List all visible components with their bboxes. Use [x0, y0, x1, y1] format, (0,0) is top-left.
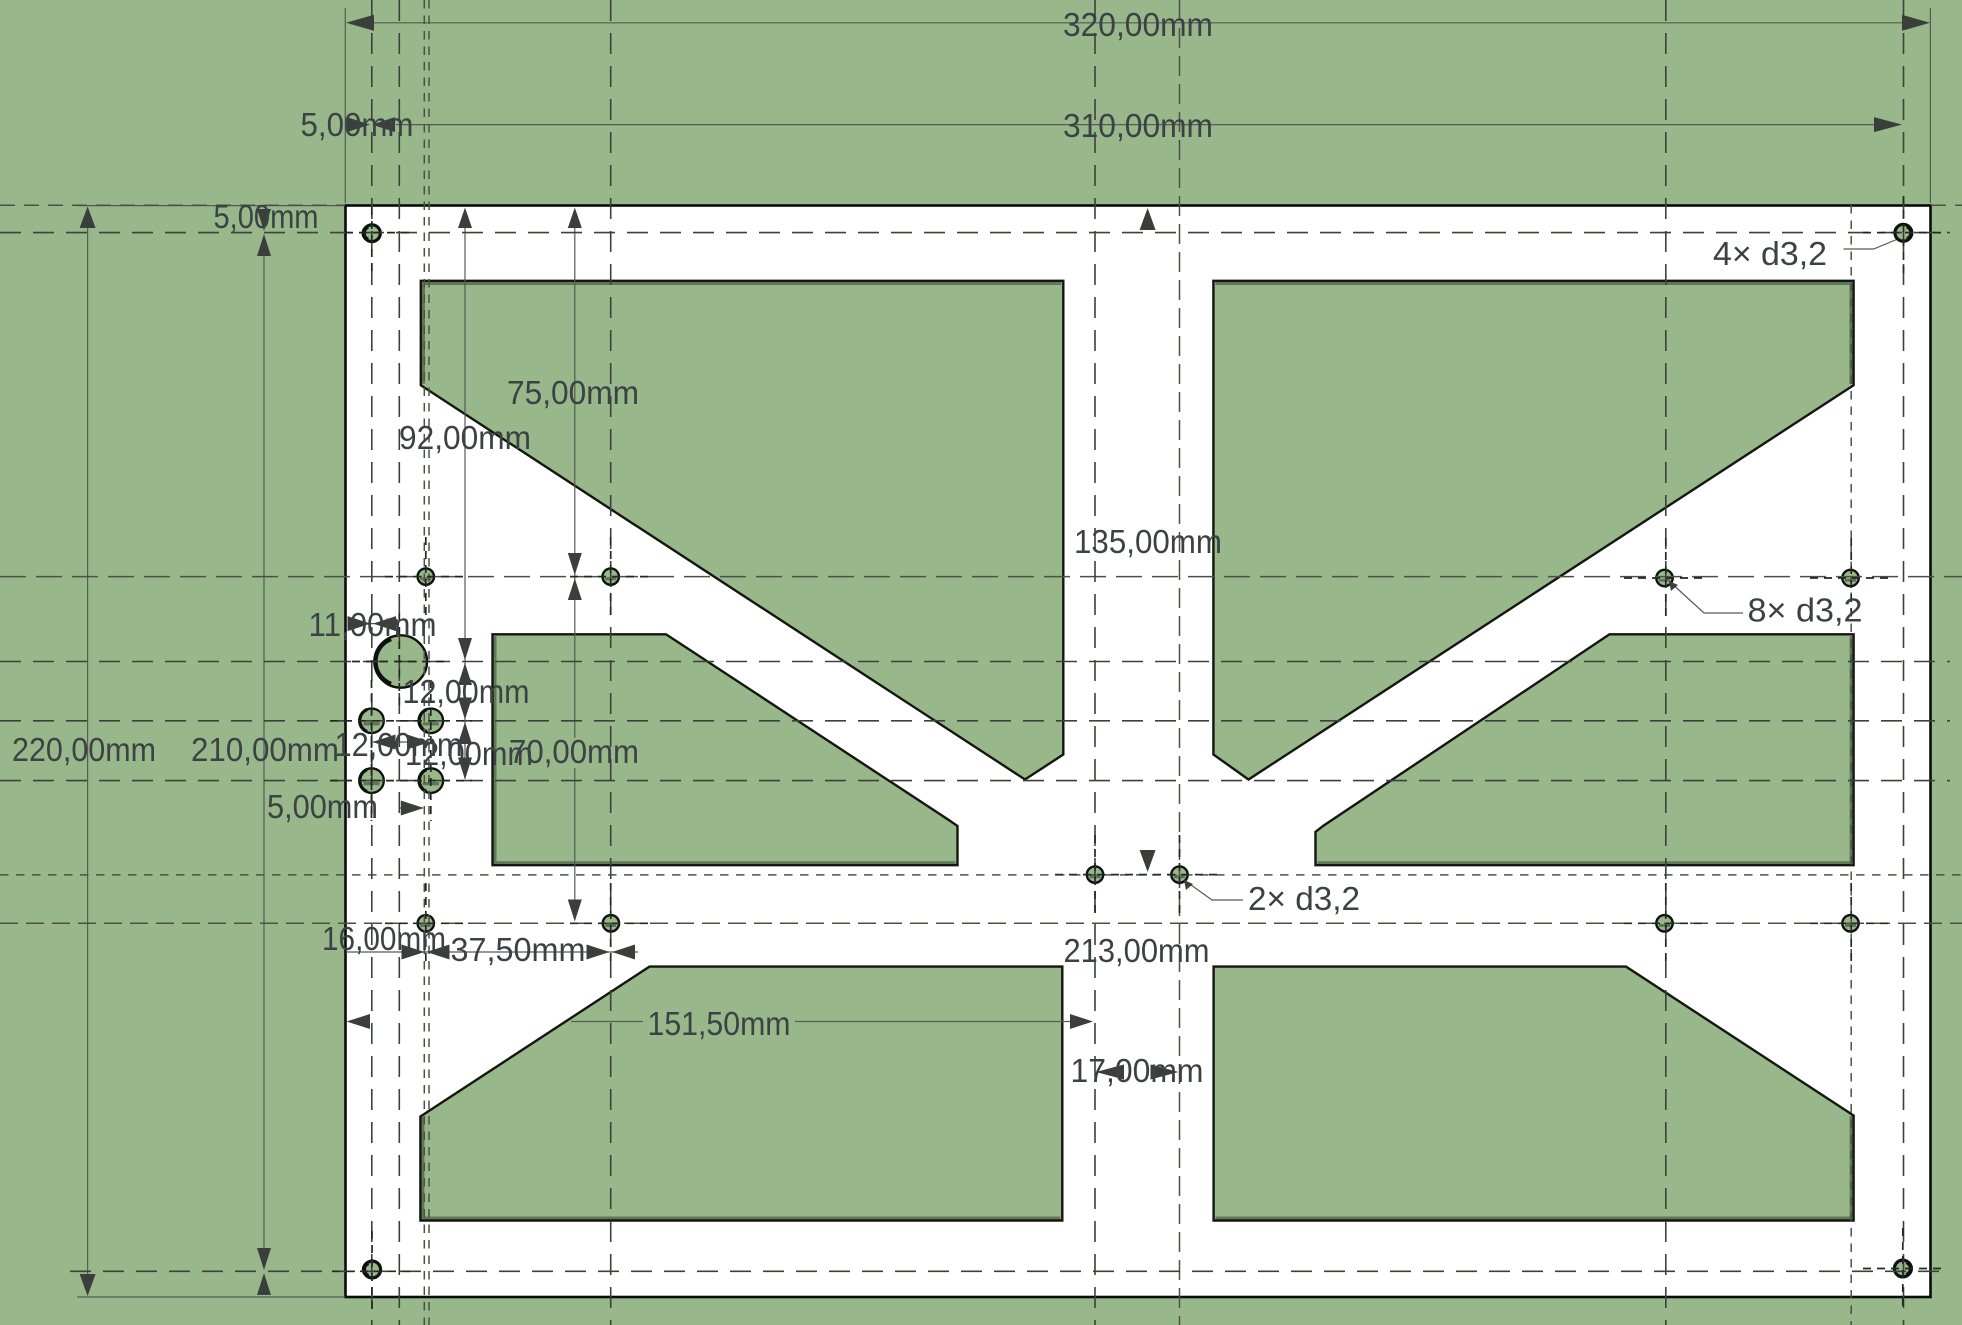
svg-text:5,00mm: 5,00mm	[214, 198, 319, 235]
svg-text:17,00mm: 17,00mm	[1071, 1052, 1204, 1089]
svg-text:2× d3,2: 2× d3,2	[1248, 880, 1360, 917]
svg-text:16,00mm: 16,00mm	[322, 920, 446, 957]
svg-text:320,00mm: 320,00mm	[1063, 6, 1213, 43]
svg-text:210,00mm: 210,00mm	[191, 731, 339, 768]
svg-text:5,00mm: 5,00mm	[301, 106, 414, 143]
svg-text:4× d3,2: 4× d3,2	[1713, 235, 1827, 272]
svg-text:37,50mm: 37,50mm	[451, 931, 586, 968]
svg-text:70,00mm: 70,00mm	[509, 733, 639, 770]
svg-text:8× d3,2: 8× d3,2	[1748, 592, 1863, 629]
svg-text:310,00mm: 310,00mm	[1063, 107, 1213, 144]
svg-text:135,00mm: 135,00mm	[1074, 523, 1222, 560]
svg-text:151,50mm: 151,50mm	[648, 1005, 791, 1042]
svg-text:92,00mm: 92,00mm	[399, 419, 531, 456]
svg-text:5,00mm: 5,00mm	[267, 788, 378, 825]
svg-text:11,00mm: 11,00mm	[309, 606, 437, 643]
svg-text:220,00mm: 220,00mm	[12, 731, 156, 768]
svg-text:75,00mm: 75,00mm	[507, 374, 639, 411]
svg-text:213,00mm: 213,00mm	[1064, 932, 1210, 969]
svg-text:12,00mm: 12,00mm	[403, 673, 530, 710]
